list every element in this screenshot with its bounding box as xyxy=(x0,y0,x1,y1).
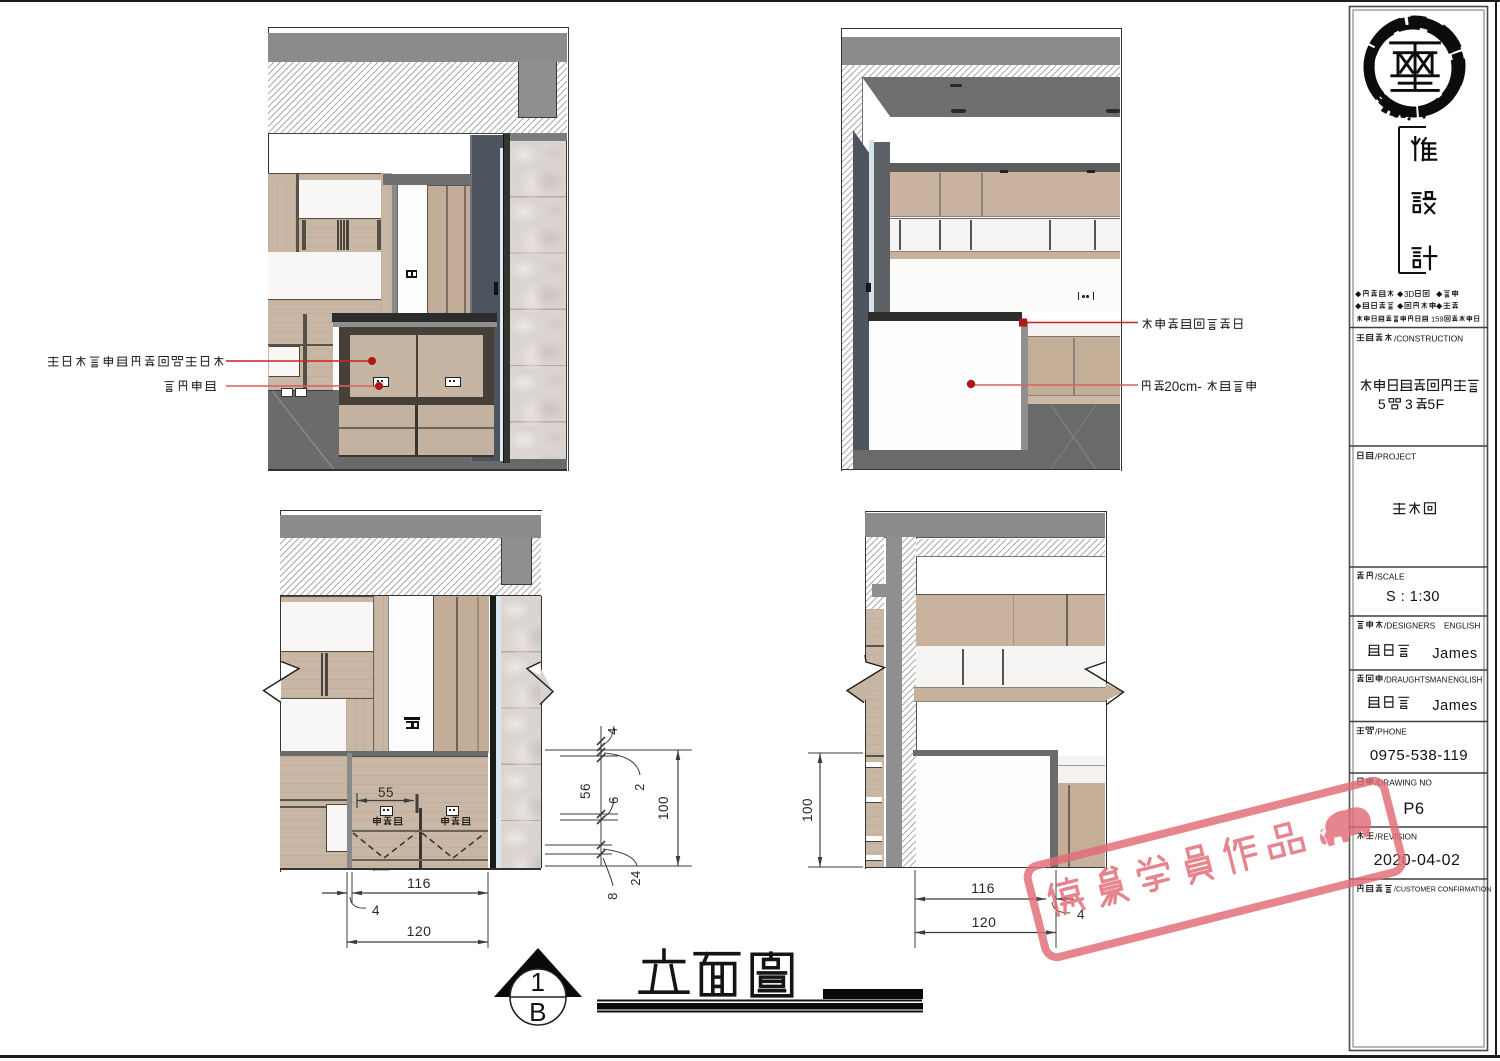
svg-text:4: 4 xyxy=(372,903,380,918)
svg-text:20cm-: 20cm- xyxy=(1164,379,1202,394)
svg-text:/SCALE: /SCALE xyxy=(1375,572,1405,582)
svg-text:56: 56 xyxy=(578,783,593,799)
svg-text:3: 3 xyxy=(1405,396,1413,412)
svg-text:/DESIGNERS: /DESIGNERS xyxy=(1384,621,1436,631)
svg-text:3D: 3D xyxy=(1404,290,1414,299)
svg-text:100: 100 xyxy=(800,798,815,822)
svg-text:100: 100 xyxy=(656,796,671,820)
svg-text:159: 159 xyxy=(1431,315,1444,324)
svg-text:24: 24 xyxy=(628,870,643,885)
svg-text:2: 2 xyxy=(632,783,647,791)
svg-text:James: James xyxy=(1432,646,1477,662)
svg-text:5F: 5F xyxy=(1427,396,1444,412)
svg-text:116: 116 xyxy=(971,880,995,896)
svg-text:0975-538-119: 0975-538-119 xyxy=(1370,747,1468,764)
svg-text:/DRAUGHTSMAN: /DRAUGHTSMAN xyxy=(1384,676,1447,685)
svg-text:5: 5 xyxy=(1378,396,1386,412)
svg-text:1: 1 xyxy=(531,967,546,997)
svg-text:B: B xyxy=(529,997,547,1027)
svg-text:55: 55 xyxy=(378,785,394,800)
svg-text:120: 120 xyxy=(407,923,432,939)
svg-text:120: 120 xyxy=(972,914,997,930)
svg-text:8: 8 xyxy=(605,892,620,900)
svg-text:P6: P6 xyxy=(1403,800,1424,818)
svg-text:/PROJECT: /PROJECT xyxy=(1375,452,1416,462)
svg-text:James: James xyxy=(1432,698,1477,714)
svg-text:/CUSTOMER CONFIRMATION: /CUSTOMER CONFIRMATION xyxy=(1394,887,1491,894)
svg-text:ENGLISH: ENGLISH xyxy=(1444,621,1480,631)
svg-text:/CONSTRUCTION: /CONSTRUCTION xyxy=(1394,334,1463,344)
svg-text:S : 1:30: S : 1:30 xyxy=(1386,589,1440,605)
svg-text:116: 116 xyxy=(407,875,431,891)
svg-text:ENGLISH: ENGLISH xyxy=(1448,676,1482,685)
svg-text:/PHONE: /PHONE xyxy=(1375,727,1407,737)
